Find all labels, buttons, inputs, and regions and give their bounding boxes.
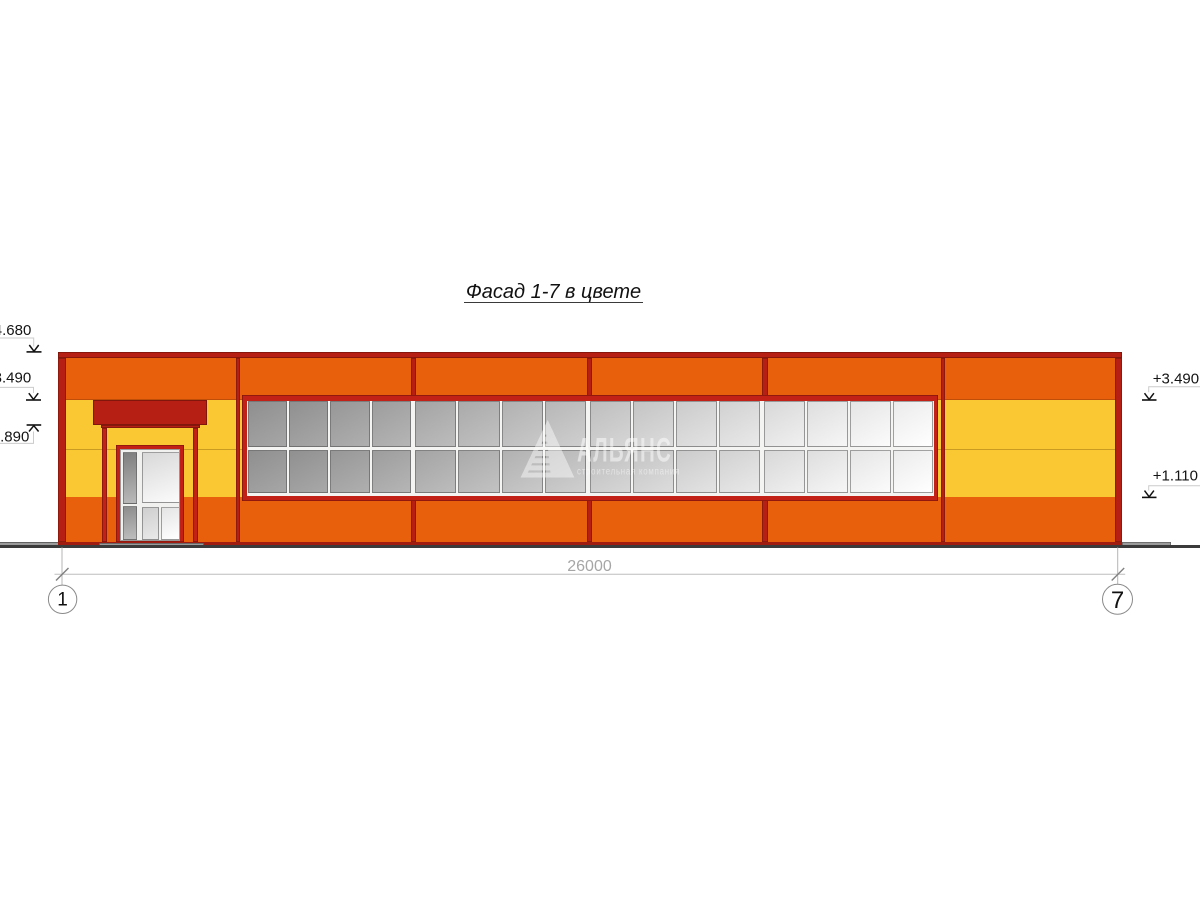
svg-text:+3.490: +3.490 <box>1153 371 1199 388</box>
svg-text:7: 7 <box>1111 587 1124 614</box>
svg-text:строительная компания: строительная компания <box>577 467 680 478</box>
svg-text:АЛЬЯНС: АЛЬЯНС <box>577 432 672 470</box>
svg-text:26000: 26000 <box>567 558 612 575</box>
svg-text:+1.110: +1.110 <box>1153 468 1198 485</box>
svg-text:1: 1 <box>57 590 68 611</box>
svg-text:+4.680: +4.680 <box>0 322 31 339</box>
svg-text:+2.890: +2.890 <box>0 428 29 445</box>
svg-text:+3.490: +3.490 <box>0 370 31 387</box>
